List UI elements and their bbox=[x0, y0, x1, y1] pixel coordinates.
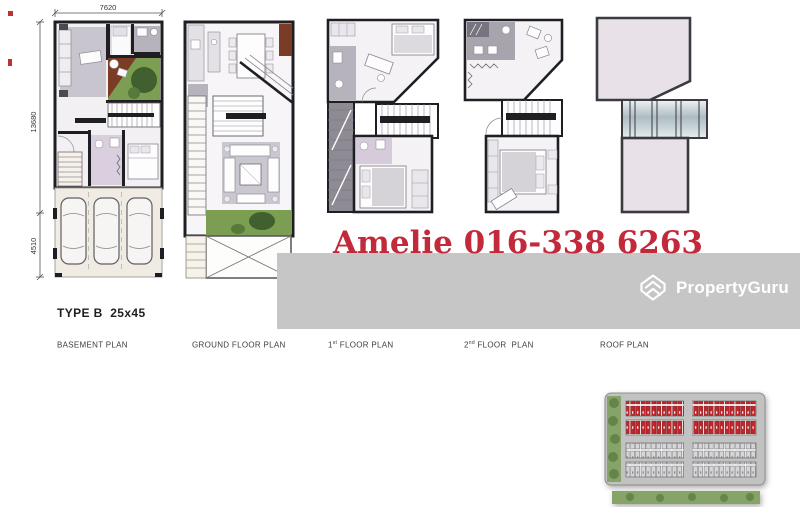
plan-label-ground: GROUND FLOOR PLAN bbox=[192, 340, 286, 350]
basement-floor-plan bbox=[53, 22, 164, 277]
second-floor-plan bbox=[465, 20, 562, 212]
plan-label-basement: BASEMENT PLAN bbox=[57, 340, 128, 350]
plan-label-second: 2nd FLOOR PLAN bbox=[464, 340, 534, 350]
floorplan-sheet: 7620 13680 4510 bbox=[0, 0, 800, 507]
ground-floor-plan bbox=[185, 22, 293, 278]
agent-watermark-text: Amelie 016-338 6263 bbox=[333, 226, 703, 260]
dimension-top-width-value: 7620 bbox=[100, 3, 117, 12]
dimension-left-lower-value: 4510 bbox=[29, 238, 38, 255]
basement-parking bbox=[53, 188, 164, 277]
propertyguru-brand-name: PropertyGuru bbox=[676, 278, 789, 298]
plan-label-first: 1st FLOOR PLAN bbox=[328, 340, 393, 350]
propertyguru-brand: PropertyGuru bbox=[637, 272, 789, 304]
roof-plan bbox=[597, 18, 707, 212]
site-map-thumbnail bbox=[605, 393, 765, 504]
unit-type-label: TYPE B 25x45 bbox=[57, 306, 146, 320]
first-floor-plan bbox=[328, 20, 438, 212]
dimension-left-upper-value: 13680 bbox=[29, 112, 38, 133]
plan-label-roof: ROOF PLAN bbox=[600, 340, 649, 350]
propertyguru-logo-icon bbox=[637, 272, 669, 304]
